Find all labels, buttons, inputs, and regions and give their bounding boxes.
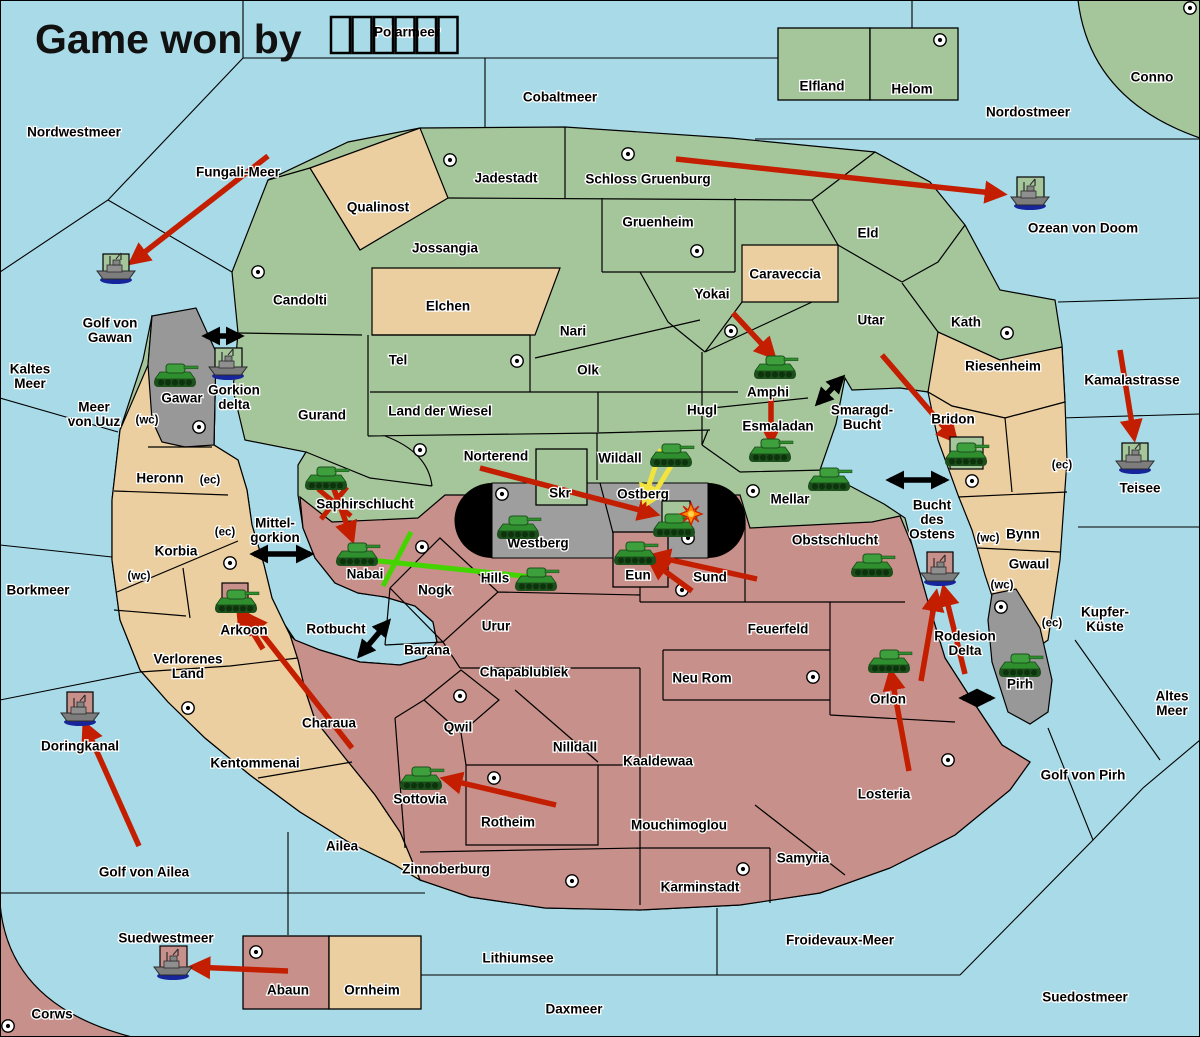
supply-center — [488, 772, 500, 784]
label-eun: Eun — [625, 568, 651, 583]
label-ostberg: Ostberg — [617, 487, 669, 502]
supply-center — [444, 154, 456, 166]
label-zinnoberburg: Zinnoberburg — [402, 862, 490, 877]
label-kupfer-kueste: Kupfer- — [1081, 605, 1129, 620]
label-nogk: Nogk — [418, 583, 452, 598]
supply-center — [193, 421, 205, 433]
label-suedostmeer: Suedostmeer — [1042, 990, 1128, 1005]
label-rodesion-delta: Delta — [948, 643, 982, 658]
label-nordwestmeer: Nordwestmeer — [27, 125, 122, 140]
label-hills: Hills — [481, 571, 510, 586]
supply-center — [737, 863, 749, 875]
supply-center — [747, 485, 759, 497]
supply-center — [1184, 2, 1196, 14]
label-ec-gwaul: (ec) — [1042, 618, 1063, 630]
label-lithiumsee: Lithiumsee — [482, 951, 554, 966]
label-gurand: Gurand — [298, 408, 346, 423]
label-olk: Olk — [577, 363, 599, 378]
label-riesenheim: Riesenheim — [965, 359, 1041, 374]
label-gruenheim: Gruenheim — [622, 215, 693, 230]
label-barana: Barana — [404, 643, 450, 658]
label-yokai: Yokai — [694, 287, 729, 302]
label-nordostmeer: Nordostmeer — [986, 105, 1071, 120]
label-gawar: Gawar — [161, 391, 203, 406]
label-altes-meer: Altes — [1155, 689, 1188, 704]
supply-center — [995, 601, 1007, 613]
supply-center — [416, 541, 428, 553]
supply-center — [691, 245, 703, 257]
label-hugl: Hugl — [687, 403, 717, 418]
label-obstschlucht: Obstschlucht — [792, 533, 879, 548]
supply-center — [496, 488, 508, 500]
label-ec-bynn-n: (ec) — [1052, 460, 1073, 472]
label-losteria: Losteria — [858, 787, 911, 802]
supply-center — [414, 444, 426, 456]
supply-center — [807, 671, 819, 683]
label-urur: Urur — [482, 619, 511, 634]
label-borkmeer: Borkmeer — [6, 583, 70, 598]
label-daxmeer: Daxmeer — [545, 1002, 603, 1017]
supply-center — [252, 266, 264, 278]
label-rotbucht: Rotbucht — [306, 622, 366, 637]
label-mittel-gorkion: Mittel- — [255, 516, 295, 531]
supply-center — [2, 1020, 14, 1032]
label-skr: Skr — [549, 486, 572, 501]
label-nilldall: Nilldall — [553, 740, 597, 755]
ship-rodesion-delta[interactable] — [921, 552, 959, 586]
label-gorkion-delta: delta — [218, 397, 250, 412]
supply-center — [566, 875, 578, 887]
label-ozean-von-doom: Ozean von Doom — [1028, 221, 1138, 236]
label-corws: Corws — [31, 1007, 72, 1022]
ship-doringkanal[interactable] — [61, 692, 99, 726]
label-polarmeer: Polarmeer — [374, 25, 441, 40]
supply-center — [942, 754, 954, 766]
label-ec-heronn: (ec) — [200, 475, 221, 487]
label-qualinost: Qualinost — [347, 200, 410, 215]
label-elchen: Elchen — [426, 299, 470, 314]
ship-teisee[interactable] — [1116, 443, 1154, 474]
label-bucht-des-ostens: Ostens — [909, 527, 955, 542]
label-heronn: Heronn — [136, 471, 183, 486]
label-golf-von-gawan: Gawan — [88, 330, 132, 345]
ship-suedwestmeer[interactable] — [154, 946, 192, 980]
label-schloss-gruenburg: Schloss Gruenburg — [585, 172, 710, 187]
label-pirh: Pirh — [1007, 677, 1033, 692]
label-jadestadt: Jadestadt — [474, 171, 538, 186]
label-candolti: Candolti — [273, 293, 327, 308]
label-golf-von-pirh: Golf von Pirh — [1041, 768, 1126, 783]
label-mittel-gorkion: gorkion — [250, 530, 300, 545]
label-bynn: Bynn — [1006, 527, 1040, 542]
label-wc-gwaul: (wc) — [991, 580, 1014, 592]
label-verlorenes-land: Land — [172, 666, 204, 681]
label-fungali-meer: Fungali-Meer — [196, 165, 281, 180]
supply-center — [182, 702, 194, 714]
label-meer-von-uuz: von Uuz — [68, 414, 121, 429]
label-teisee: Teisee — [1119, 481, 1161, 496]
label-kaltes-meer: Kaltes — [10, 362, 51, 377]
label-elfland: Elfland — [799, 79, 844, 94]
label-sottovia: Sottovia — [393, 792, 447, 807]
supply-center — [725, 325, 737, 337]
label-kaltes-meer: Meer — [14, 376, 46, 391]
label-kamalastrasse: Kamalastrasse — [1084, 373, 1180, 388]
label-froidevaux-meer: Froidevaux-Meer — [786, 933, 895, 948]
supply-center — [511, 355, 523, 367]
territory-ornheim[interactable] — [329, 936, 421, 1009]
label-charaua: Charaua — [302, 716, 357, 731]
label-wc-korbia: (wc) — [128, 571, 151, 583]
tank-bridon[interactable] — [945, 437, 989, 469]
label-orlon: Orlon — [870, 692, 906, 707]
label-suedwestmeer: Suedwestmeer — [118, 931, 214, 946]
ship-gorkion-delta[interactable] — [209, 348, 247, 380]
label-utar: Utar — [857, 313, 885, 328]
supply-center — [250, 946, 262, 958]
page-title: Game won by — [35, 16, 302, 62]
label-smaragd-bucht: Smaragd- — [831, 403, 893, 418]
label-meer-von-uuz: Meer — [78, 400, 110, 415]
label-mellar: Mellar — [770, 492, 810, 507]
label-karminstadt: Karminstadt — [661, 880, 740, 895]
label-qwil: Qwil — [444, 720, 473, 735]
label-neu-rom: Neu Rom — [672, 671, 731, 686]
label-golf-von-ailea: Golf von Ailea — [99, 865, 190, 880]
label-gwaul: Gwaul — [1009, 557, 1050, 572]
label-arkoon: Arkoon — [220, 623, 267, 638]
label-verlorenes-land: Verlorenes — [153, 652, 222, 667]
label-jossangia: Jossangia — [412, 241, 479, 256]
label-bucht-des-ostens: des — [920, 512, 943, 527]
label-nari: Nari — [560, 324, 586, 339]
game-map-screenshot: NordwestmeerPolarmeerCobaltmeerNordostme… — [0, 0, 1200, 1037]
label-mouchimoglou: Mouchimoglou — [631, 818, 727, 833]
ship-golf-von-gawan[interactable] — [97, 253, 135, 284]
label-ailea: Ailea — [326, 839, 359, 854]
label-sund: Sund — [693, 570, 727, 585]
label-nabai: Nabai — [347, 567, 384, 582]
label-kaaldewaa: Kaaldewaa — [623, 754, 693, 769]
supply-center — [1001, 327, 1013, 339]
label-ornheim: Ornheim — [344, 983, 400, 998]
supply-center — [934, 34, 946, 46]
label-rotheim: Rotheim — [481, 815, 535, 830]
label-kath: Kath — [951, 315, 981, 330]
label-altes-meer: Meer — [1156, 703, 1188, 718]
label-saphirschlucht: Saphirschlucht — [316, 497, 414, 512]
label-rodesion-delta: Rodesion — [934, 629, 996, 644]
label-doringkanal: Doringkanal — [41, 739, 119, 754]
label-ec-korbia: (ec) — [215, 527, 236, 539]
supply-center — [622, 148, 634, 160]
label-smaragd-bucht: Bucht — [843, 417, 882, 432]
label-bridon: Bridon — [931, 412, 975, 427]
label-kentommenai: Kentommenai — [210, 756, 299, 771]
label-tel: Tel — [389, 353, 408, 368]
label-wc-uuz: (wc) — [136, 415, 159, 427]
label-esmaladan: Esmaladan — [742, 419, 813, 434]
label-korbia: Korbia — [155, 544, 198, 559]
label-bucht-des-ostens: Bucht — [913, 498, 952, 513]
label-cobaltmeer: Cobaltmeer — [523, 90, 598, 105]
ship-ozean-von-doom[interactable] — [1011, 177, 1049, 210]
label-kupfer-kueste: Küste — [1086, 619, 1124, 634]
label-feuerfeld: Feuerfeld — [748, 622, 809, 637]
supply-center — [224, 557, 236, 569]
label-conno: Conno — [1131, 70, 1174, 85]
label-eld: Eld — [857, 226, 878, 241]
label-helom: Helom — [891, 82, 932, 97]
label-wildall: Wildall — [598, 451, 641, 466]
label-chapablublek: Chapablublek — [480, 665, 569, 680]
label-golf-von-gawan: Golf von — [83, 316, 138, 331]
label-gorkion-delta: Gorkion — [208, 383, 260, 398]
label-samyria: Samyria — [777, 851, 830, 866]
explosion-icon — [680, 503, 702, 525]
label-amphi: Amphi — [747, 385, 789, 400]
supply-center — [966, 475, 978, 487]
supply-center — [454, 690, 466, 702]
label-norterend: Norterend — [464, 449, 529, 464]
label-wc-bynn: (wc) — [977, 533, 1000, 545]
label-land-der-wiesel: Land der Wiesel — [388, 404, 491, 419]
label-abaun: Abaun — [267, 983, 309, 998]
label-caraveccia: Caraveccia — [749, 267, 821, 282]
